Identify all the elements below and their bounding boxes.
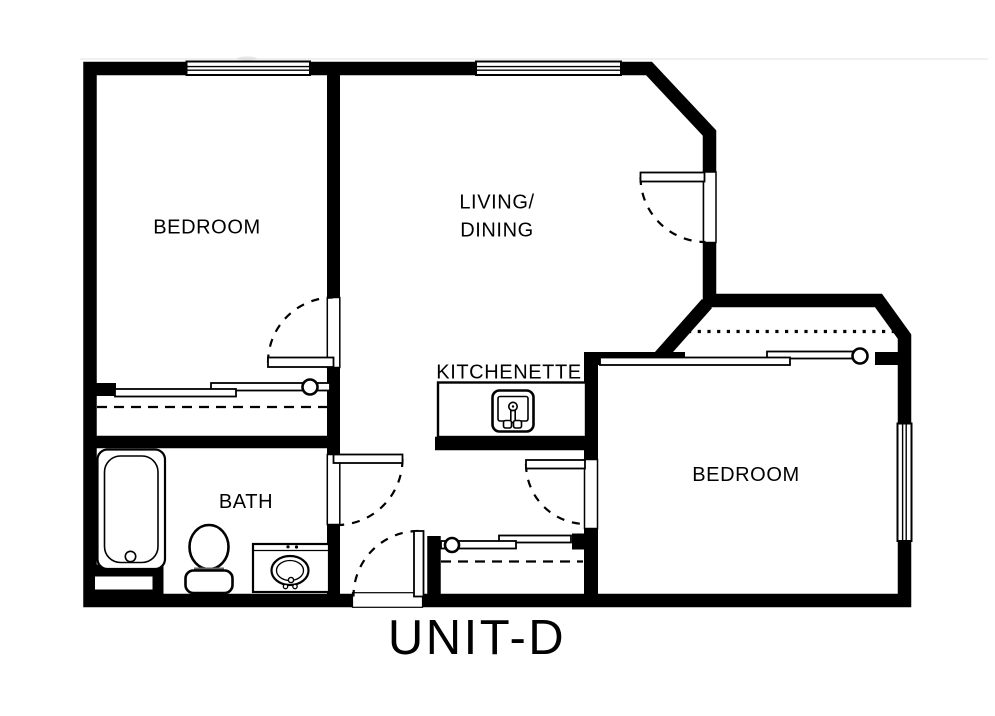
- closet2-door-handle: [853, 349, 868, 364]
- entry-door-threshold: [353, 593, 423, 608]
- hall-closet-door-handle: [445, 538, 459, 552]
- unit-title: UNIT-D: [388, 611, 566, 665]
- floor-plan-drawing: BEDROOM LIVING/ DINING KITCHENETTE BATH …: [0, 0, 995, 716]
- bedroom-right-label: BEDROOM: [692, 464, 800, 486]
- living-dining-label-line1: LIVING/: [459, 192, 534, 214]
- kitchenette-fixtures: [438, 383, 586, 438]
- bedroom2-door: [526, 460, 585, 524]
- vanity-faucet: [288, 577, 293, 582]
- entry-door: [353, 531, 423, 597]
- floor-plan-canvas: BEDROOM LIVING/ DINING KITCHENETTE BATH …: [0, 0, 995, 716]
- bedroom-left-label: BEDROOM: [153, 217, 261, 239]
- kitchenette-sink: [493, 391, 534, 432]
- closet1-door-handle: [303, 380, 318, 395]
- scan-artifact-smudge: [237, 57, 257, 61]
- living-door: [641, 173, 706, 243]
- kitchenette-label: KITCHENETTE: [436, 362, 582, 384]
- bath-door: [334, 455, 403, 526]
- closet1-sliding-doors: [97, 380, 330, 408]
- window-bedroom-left: [187, 62, 311, 76]
- walls: [84, 62, 905, 601]
- bath-door-jamb: [327, 455, 340, 525]
- window-bedroom-right: [898, 424, 912, 542]
- vanity-sink: [253, 544, 329, 592]
- window-living: [476, 62, 621, 76]
- exterior-wall: [90, 69, 905, 601]
- living-dining-label-line2: DINING: [460, 220, 534, 242]
- bedroom1-door: [268, 298, 334, 368]
- tub-surround-niche: [95, 577, 153, 590]
- tub-drain: [125, 551, 135, 561]
- sink-knob-right: [514, 421, 522, 429]
- bedroom2-door-jamb: [585, 460, 598, 529]
- toilet-tank: [186, 571, 233, 594]
- bath-label: BATH: [219, 491, 273, 513]
- bathtub: [98, 450, 166, 570]
- sink-knob-left: [504, 421, 512, 429]
- toilet: [186, 525, 233, 593]
- hall-closet-sliding-doors: [441, 536, 583, 562]
- living-door-jamb: [704, 172, 717, 243]
- closet2-sliding-doors: [600, 332, 896, 366]
- hall-closet-right-stub: [572, 534, 587, 550]
